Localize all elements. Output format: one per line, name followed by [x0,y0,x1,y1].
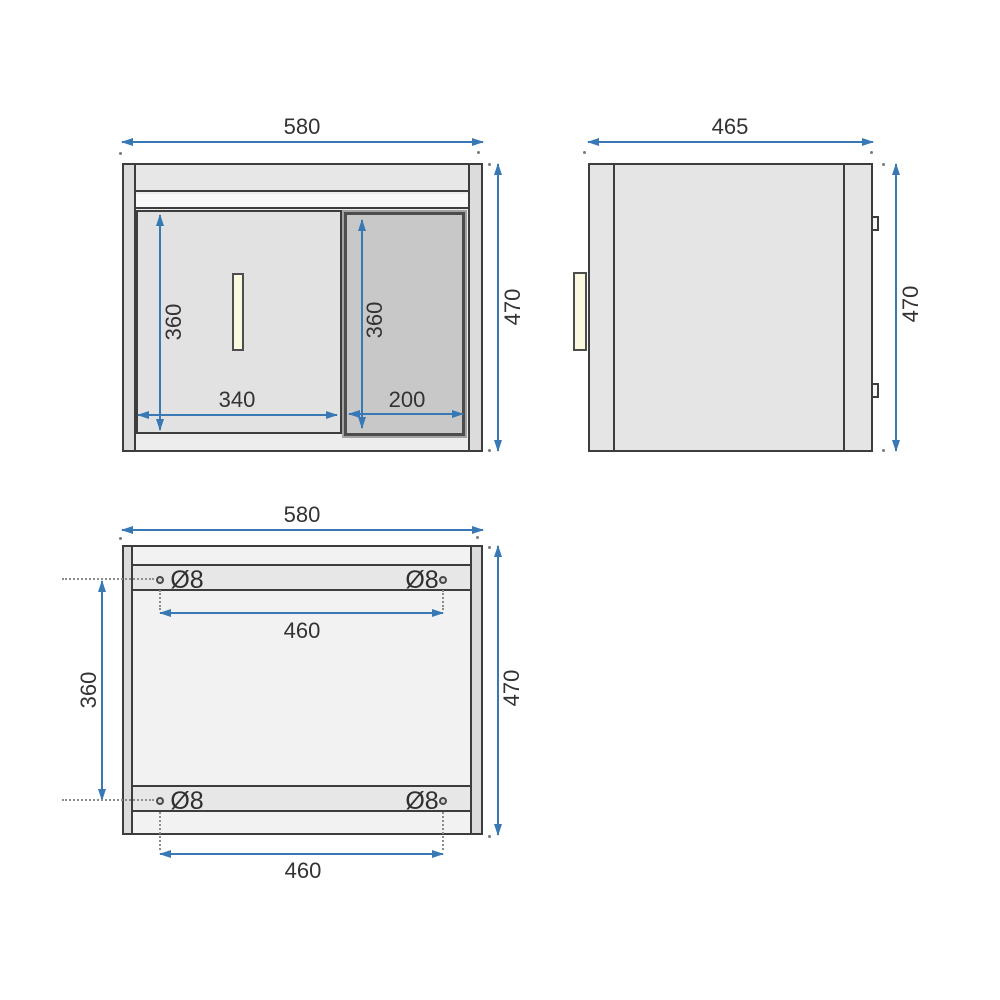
witness-dot [488,449,491,452]
side-mounting-bracket-top [871,216,879,231]
front-drawer-width-dim-label: 340 [202,387,272,413]
back-extension-dotted-br [442,812,444,850]
front-height-dim-label: 470 [500,272,526,342]
back-width-dim-label: 580 [267,502,337,528]
back-hole-span-bottom-dim-line [160,853,443,855]
front-width-dim-line [122,141,483,143]
back-right-side-panel [470,547,481,833]
witness-dot [870,151,873,154]
back-height-dim-label: 470 [499,653,525,723]
side-depth-dim-line [588,141,873,143]
front-drawer-width-dim-line [138,414,337,416]
back-extension-dotted-bl [159,812,161,850]
witness-dot [119,152,122,155]
back-extension-dotted-tr [442,590,444,610]
back-extension-dotted-tl [159,590,161,610]
side-height-dim-label: 470 [898,269,924,339]
back-width-dim-line [122,529,483,531]
side-handle-profile [573,272,587,351]
front-left-side-panel [124,165,136,450]
side-depth-dim-label: 465 [695,114,765,140]
technical-drawing-canvas: 580 470 360 340 360 200 465 470 Ø8 Ø8 Ø8… [0,0,1000,1000]
witness-dot [119,537,122,540]
witness-dot [488,546,491,549]
side-back-panel-line [843,165,845,450]
front-top-trim-strip [136,194,468,209]
side-front-panel-line [613,165,615,450]
side-height-dim-line [895,164,897,451]
back-hole-dia-label-top-right: Ø8 [387,566,457,594]
witness-dot [476,536,479,539]
front-height-dim-line [497,164,499,451]
back-hole-span-top-dim-line [160,612,443,614]
witness-dot [882,449,885,452]
back-left-side-panel [124,547,133,833]
front-door-height-dim-label: 360 [362,285,388,355]
side-view [588,163,873,452]
witness-dot [882,163,885,166]
side-mounting-bracket-bottom [871,383,879,398]
back-hole-dia-label-bottom-left: Ø8 [152,787,222,815]
back-hole-row-spacing-dim-label: 360 [76,655,102,725]
witness-dot [477,151,480,154]
front-drawer-handle [232,273,244,351]
front-top-rail [136,165,468,192]
back-hole-span-bottom-dim-label: 460 [268,858,338,884]
front-door-width-dim-label: 200 [372,387,442,413]
back-extension-dotted-top [62,578,154,580]
witness-dot [488,163,491,166]
witness-dot [583,151,586,154]
back-hole-dia-label-top-left: Ø8 [152,566,222,594]
back-hole-dia-label-bottom-right: Ø8 [387,787,457,815]
witness-dot [488,835,491,838]
back-extension-dotted-bottom [62,799,154,801]
back-hole-span-top-dim-label: 460 [267,618,337,644]
front-door-width-dim-line [349,413,463,415]
front-drawer-height-dim-label: 360 [161,287,187,357]
front-width-dim-label: 580 [267,114,337,140]
front-right-side-panel [468,165,481,450]
